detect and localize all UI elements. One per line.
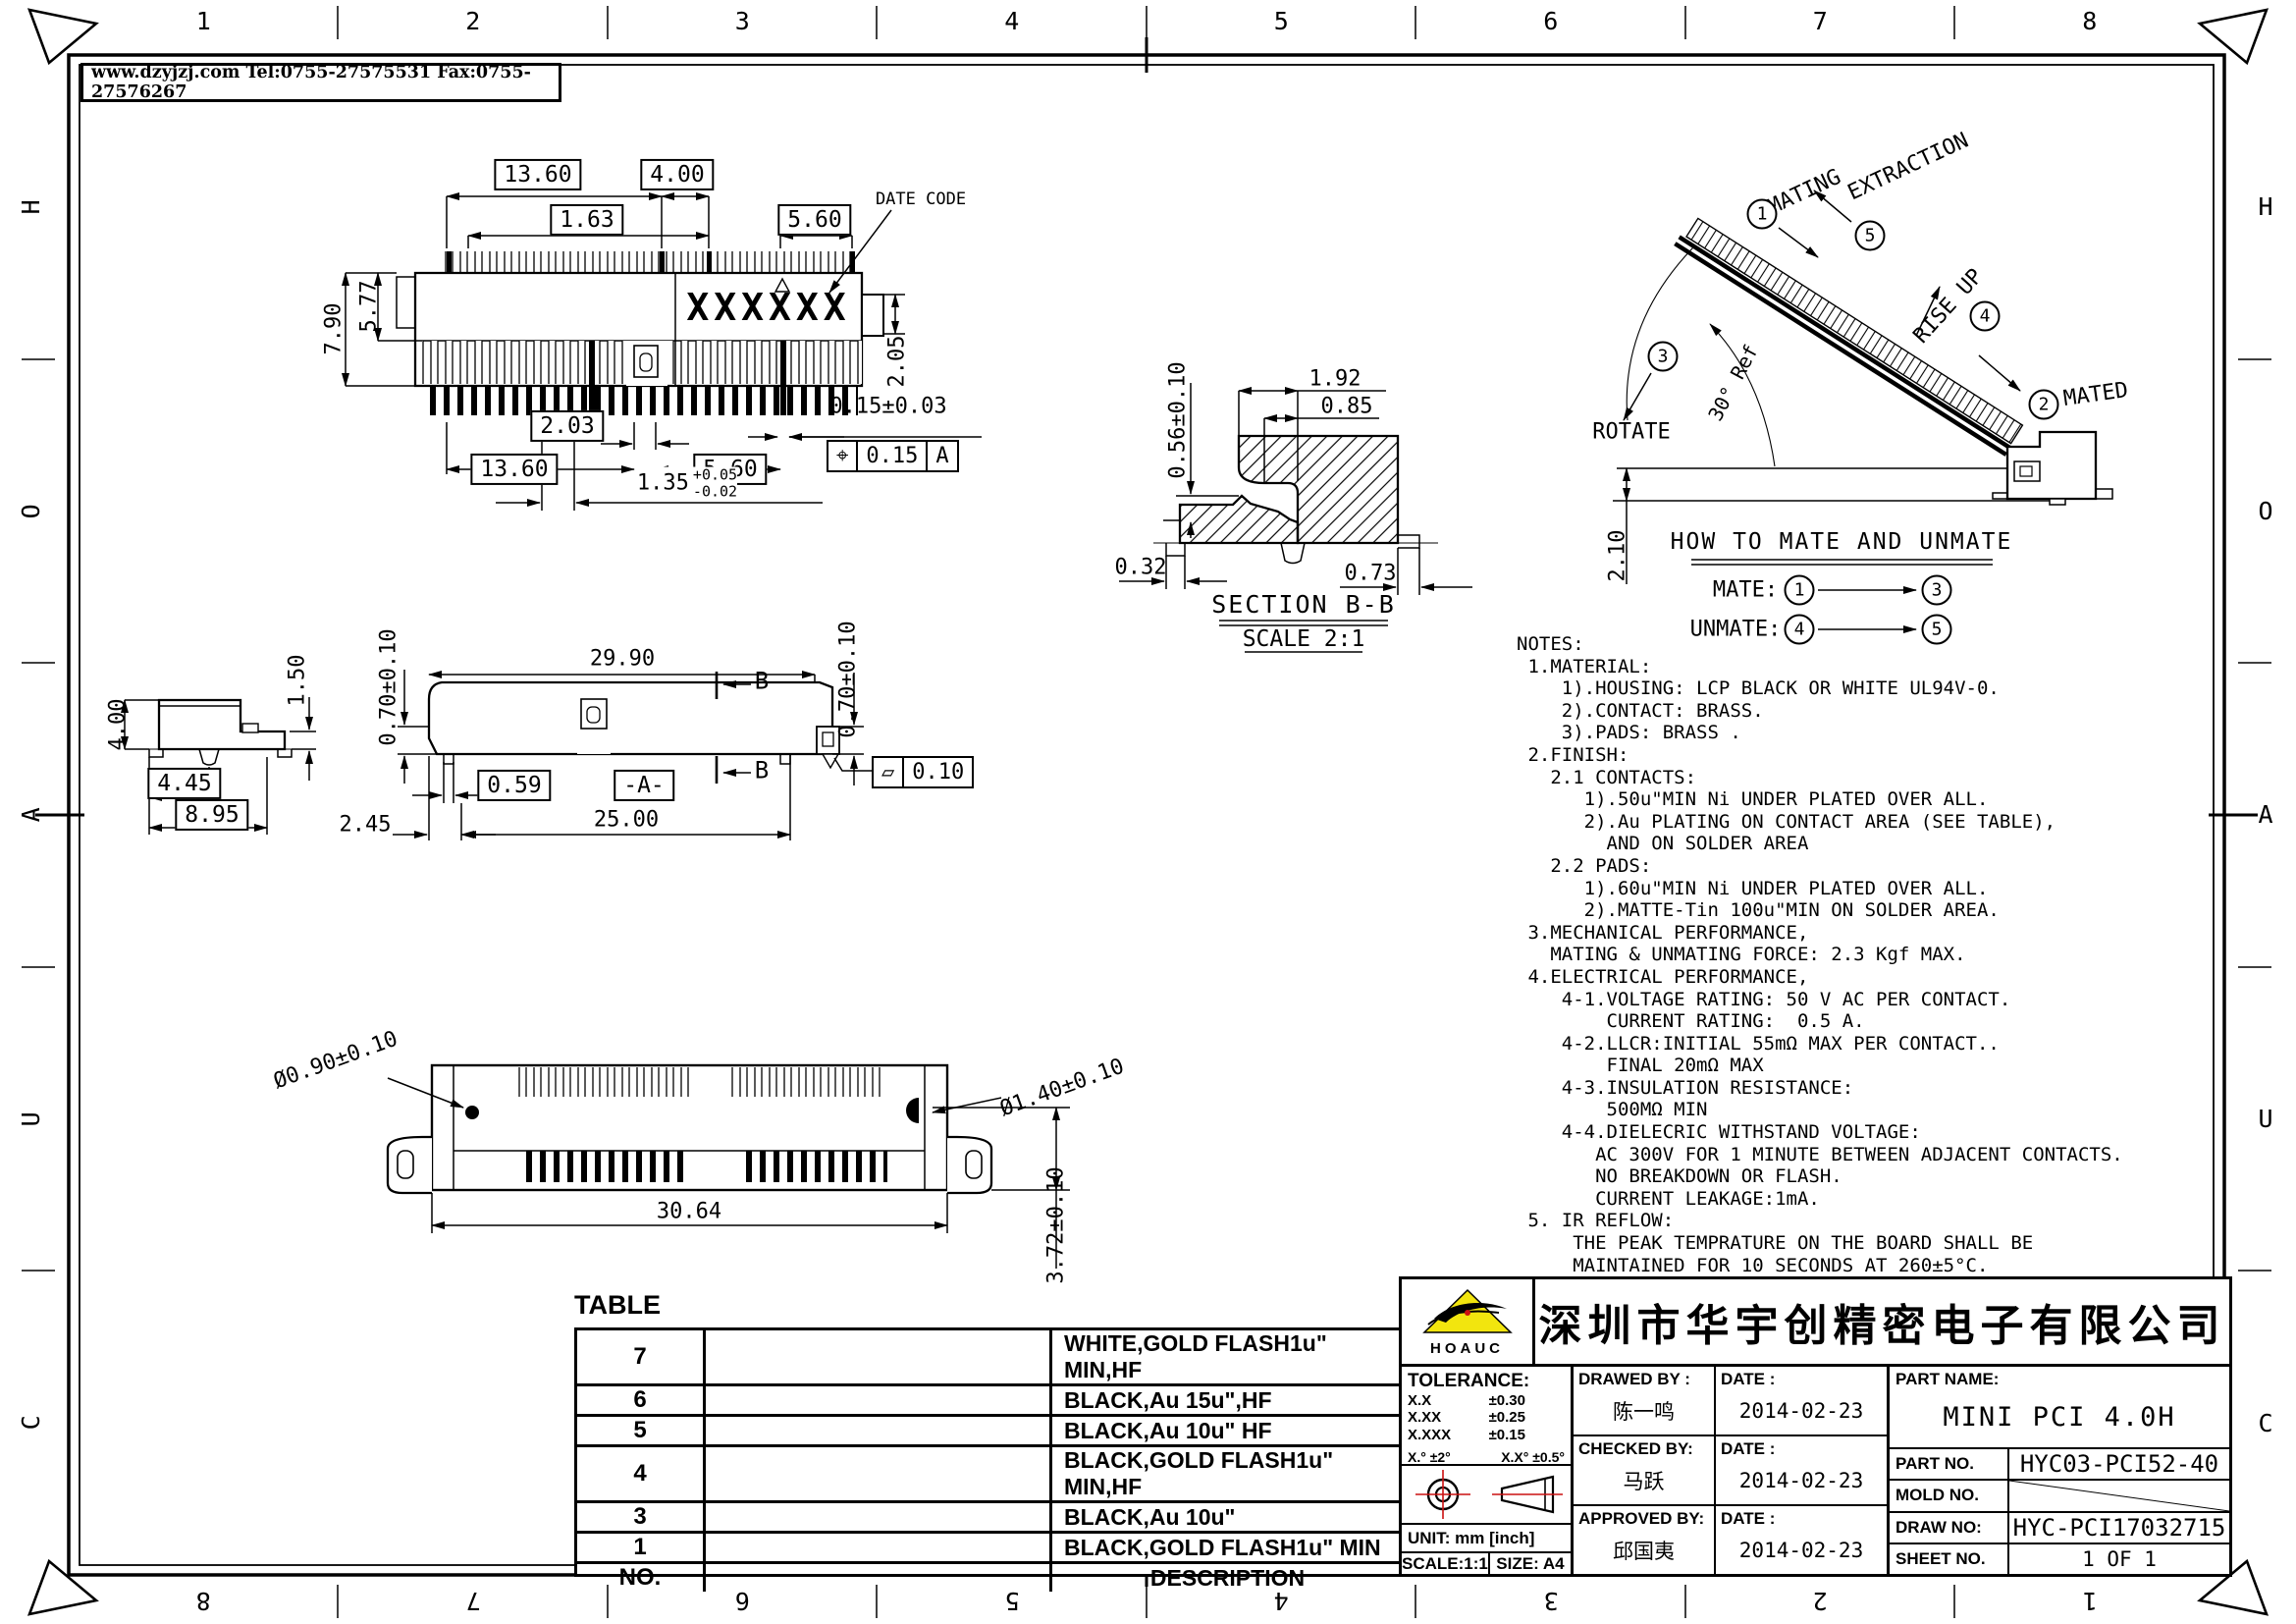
approved-date: 2014-02-23: [1721, 1529, 1882, 1571]
dim-2-45: 2.45: [340, 813, 392, 836]
dim-0-70-right: 0.70±0.10: [836, 621, 859, 737]
table-header-row: NO. DESCRIPTION: [577, 1561, 1403, 1592]
header-spec-cell: [706, 1564, 1052, 1592]
dim-1-35-tol: 1.35 +0.05 -0.02: [637, 467, 737, 500]
step-circle-5: 5: [1855, 221, 1886, 251]
dim-0-32: 0.32: [1115, 556, 1167, 578]
row-desc: BLACK,Au 10u": [1052, 1503, 1403, 1531]
row-spec-cell: [706, 1503, 1052, 1531]
checked-by-name: 马跃: [1578, 1459, 1709, 1501]
part-info-section: PART NAME: MINI PCI 4.0H PART NO. HYC03-…: [1890, 1367, 2229, 1574]
part-name-label: PART NAME:: [1896, 1370, 2223, 1389]
flatness-value: 0.10: [904, 758, 972, 786]
tol-r2-label: X.XX: [1408, 1409, 1441, 1426]
row-desc: BLACK,Au 10u" HF: [1052, 1417, 1403, 1444]
drawed-by-row: DRAWED BY :陈一鸣 DATE :2014-02-23: [1574, 1367, 1887, 1436]
dim-13-60-bottom: 13.60: [470, 454, 558, 485]
dim-2-10: 2.10: [1606, 530, 1629, 582]
signatures-section: DRAWED BY :陈一鸣 DATE :2014-02-23 CHECKED …: [1574, 1367, 1890, 1574]
dim-1-35-lower-tol: -0.02: [693, 483, 737, 500]
position-tolerance-frame: ⌖ 0.15 A: [827, 440, 959, 472]
date-label: DATE :: [1721, 1439, 1882, 1459]
row-no: 4: [577, 1447, 706, 1500]
checked-by-label: CHECKED BY:: [1578, 1439, 1709, 1459]
dim-2-03: 2.03: [530, 410, 604, 442]
dim-2-05: 2.05: [885, 336, 908, 388]
dim-4-00-side: 4.00: [106, 699, 129, 751]
row-spec-cell: [706, 1447, 1052, 1500]
dim-1-35-upper-tol: +0.05: [693, 467, 737, 484]
table-row: 1 BLACK,GOLD FLASH1u" MIN: [577, 1531, 1403, 1561]
dim-8-95: 8.95: [175, 799, 248, 831]
approved-by-row: APPROVED BY:邱国夷 DATE :2014-02-23: [1574, 1506, 1887, 1574]
unit-label: UNIT: mm [inch]: [1402, 1525, 1571, 1553]
dim-4-00: 4.00: [640, 159, 714, 190]
date-label: DATE :: [1721, 1370, 1882, 1389]
legend-circle-3: 3: [1922, 575, 1952, 606]
table-row: 4 BLACK,GOLD FLASH1u" MIN,HF: [577, 1444, 1403, 1500]
header-desc: DESCRIPTION: [1052, 1564, 1403, 1592]
row-spec-cell: [706, 1330, 1052, 1383]
logo-text: HOAUC: [1430, 1340, 1504, 1357]
table-row: 5 BLACK,Au 10u" HF: [577, 1414, 1403, 1444]
tol-r3-label: X.XXX: [1408, 1427, 1451, 1443]
company-name: 深圳市华宇创精密电子有限公司: [1535, 1279, 2229, 1364]
company-logo: HOAUC: [1402, 1279, 1535, 1364]
draw-no-label: DRAW NO:: [1890, 1513, 2009, 1543]
plating-table: 7 WHITE,GOLD FLASH1u" MIN,HF 6 BLACK,Au …: [574, 1327, 1406, 1577]
dim-3-72: 3.72±0.10: [1044, 1166, 1067, 1283]
section-bb-scale: SCALE 2:1: [1243, 627, 1365, 651]
dim-1-63: 1.63: [550, 204, 623, 236]
mold-no-label: MOLD NO.: [1890, 1481, 2009, 1510]
tolerance-title: TOLERANCE:: [1408, 1371, 1565, 1392]
step-circle-4: 4: [1970, 301, 2001, 332]
dim-1-92: 1.92: [1309, 367, 1362, 390]
approved-by-label: APPROVED BY:: [1578, 1509, 1709, 1529]
dim-30-64: 30.64: [657, 1200, 721, 1222]
row-desc: BLACK,GOLD FLASH1u" MIN: [1052, 1534, 1403, 1561]
tol-r3-value: ±0.15: [1489, 1427, 1525, 1443]
notes-block: NOTES: 1.MATERIAL: 1).HOUSING: LCP BLACK…: [1517, 633, 2274, 1276]
dim-0-59: 0.59: [477, 770, 551, 801]
dim-1-35-main: 1.35: [637, 471, 689, 494]
mold-no-value: [2009, 1481, 2229, 1510]
dim-0-73: 0.73: [1345, 562, 1397, 584]
position-tolerance-value: 0.15: [858, 442, 928, 470]
section-arrow-b-top: B: [755, 669, 769, 693]
projection-symbols: [1402, 1466, 1571, 1525]
mate-label: MATE:: [1713, 578, 1778, 601]
tol-r2-value: ±0.25: [1489, 1409, 1525, 1426]
checked-by-row: CHECKED BY:马跃 DATE :2014-02-23: [1574, 1436, 1887, 1506]
company-contact-header: www.dzyjzj.com Tel:0755-27575531 Fax:075…: [80, 63, 561, 102]
sheet-no-value: 1 OF 1: [2009, 1544, 2229, 1574]
section-bb-title: SECTION B-B: [1211, 592, 1396, 618]
zone-letters-left: HOAUC: [10, 55, 53, 1575]
part-name-value: MINI PCI 4.0H: [1896, 1389, 2223, 1444]
zone-numbers-top: 12345678: [69, 0, 2224, 41]
row-no: 7: [577, 1330, 706, 1383]
step-circle-1: 1: [1747, 199, 1778, 230]
sheet-no-label: SHEET NO.: [1890, 1544, 2009, 1574]
row-no: 5: [577, 1417, 706, 1444]
tol-angle-2: X.X° ±0.5°: [1501, 1449, 1565, 1465]
title-block: HOAUC 深圳市华宇创精密电子有限公司 TOLERANCE: X.X±0.30…: [1399, 1276, 2232, 1577]
dim-1-50: 1.50: [286, 655, 308, 707]
projection-symbol-icon: [1408, 1468, 1565, 1521]
drawing-sheet: 12345678 87654321 HOAUC HOAUC www.dzyjzj…: [0, 0, 2296, 1624]
dim-29-90: 29.90: [590, 647, 655, 670]
dim-25-00: 25.00: [594, 808, 659, 831]
logo-icon: [1413, 1287, 1522, 1342]
datum-a-label: -A-: [614, 770, 674, 801]
dim-13-60-top: 13.60: [494, 159, 581, 190]
dim-0-15-tol: 0.15±0.03: [829, 395, 946, 417]
part-no-label: PART NO.: [1890, 1449, 2009, 1479]
dim-0-85: 0.85: [1321, 395, 1373, 417]
size-label: SIZE: A4: [1490, 1553, 1571, 1574]
step-circle-2: 2: [2029, 390, 2059, 420]
row-no: 6: [577, 1386, 706, 1414]
dim-5-77: 5.77: [357, 281, 380, 333]
draw-no-value: HYC-PCI17032715: [2009, 1513, 2229, 1543]
scale-label: SCALE:1:1: [1402, 1553, 1490, 1574]
table-title: TABLE: [574, 1290, 661, 1321]
dim-0-70-left: 0.70±0.10: [377, 628, 400, 745]
date-label: DATE :: [1721, 1509, 1882, 1529]
position-symbol-icon: ⌖: [828, 442, 858, 470]
row-spec-cell: [706, 1386, 1052, 1414]
tol-r1-label: X.X: [1408, 1392, 1431, 1409]
tol-angle-1: X.° ±2°: [1408, 1449, 1451, 1465]
title-block-header: HOAUC 深圳市华宇创精密电子有限公司: [1402, 1279, 2229, 1367]
dim-0-56-tol: 0.56±0.10: [1166, 361, 1189, 478]
how-to-mate-title: HOW TO MATE AND UNMATE: [1671, 530, 2013, 554]
dim-7-90: 7.90: [322, 303, 345, 355]
section-arrow-b-bottom: B: [755, 758, 769, 783]
drawed-by-label: DRAWED BY :: [1578, 1370, 1709, 1389]
dim-5-60-top: 5.60: [777, 204, 851, 236]
legend-circle-1: 1: [1785, 575, 1815, 606]
part-marking: XXXXXX: [686, 289, 850, 328]
bottom-view-drawing: [388, 1065, 1070, 1269]
header-no: NO.: [577, 1564, 706, 1592]
tolerance-section: TOLERANCE: X.X±0.30 X.XX±0.25 X.XXX±0.15…: [1402, 1367, 1574, 1574]
step-circle-3: 3: [1648, 342, 1679, 372]
drawed-by-name: 陈一鸣: [1578, 1389, 1709, 1432]
parallelism-symbol-icon: ▱: [874, 758, 904, 786]
row-no: 3: [577, 1503, 706, 1531]
drawed-date: 2014-02-23: [1721, 1389, 1882, 1432]
contact-text: www.dzyjzj.com Tel:0755-27575531 Fax:075…: [91, 63, 559, 102]
row-spec-cell: [706, 1534, 1052, 1561]
table-row: 7 WHITE,GOLD FLASH1u" MIN,HF: [577, 1330, 1403, 1383]
part-no-value: HYC03-PCI52-40: [2009, 1449, 2229, 1479]
row-no: 1: [577, 1534, 706, 1561]
rotate-label: ROTATE: [1592, 420, 1670, 443]
row-spec-cell: [706, 1417, 1052, 1444]
tol-r1-value: ±0.30: [1489, 1392, 1525, 1409]
dim-4-45: 4.45: [147, 768, 221, 799]
date-code-label: DATE CODE: [876, 191, 966, 209]
checked-date: 2014-02-23: [1721, 1459, 1882, 1501]
table-row: 6 BLACK,Au 15u",HF: [577, 1383, 1403, 1414]
flatness-tolerance-frame: ▱ 0.10: [872, 756, 974, 788]
table-row: 3 BLACK,Au 10u": [577, 1500, 1403, 1531]
row-desc: BLACK,GOLD FLASH1u" MIN,HF: [1052, 1447, 1403, 1500]
position-datum: A: [928, 442, 956, 470]
row-desc: BLACK,Au 15u",HF: [1052, 1386, 1403, 1414]
approved-by-name: 邱国夷: [1578, 1529, 1709, 1571]
row-desc: WHITE,GOLD FLASH1u" MIN,HF: [1052, 1330, 1403, 1383]
